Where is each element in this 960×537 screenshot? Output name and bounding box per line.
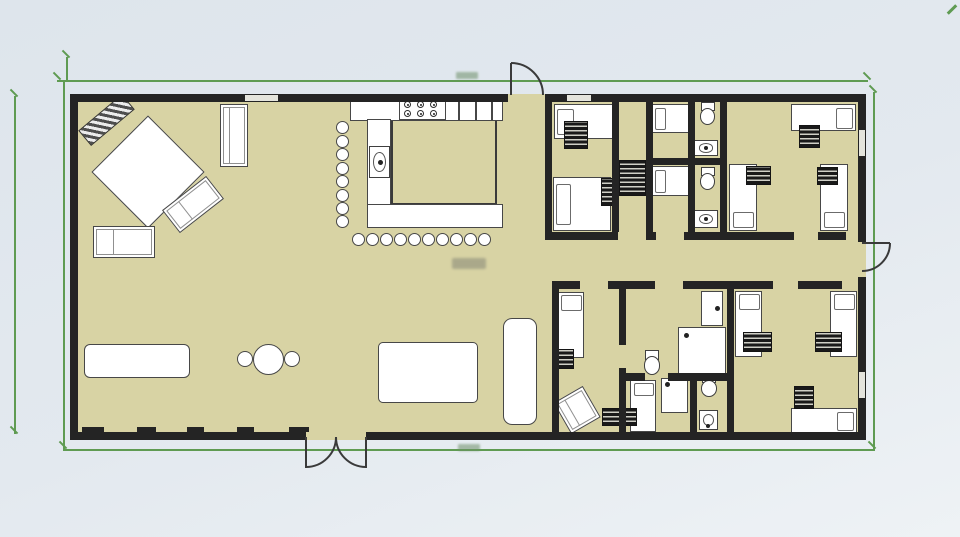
bar-stool [380,233,393,246]
pillow [556,184,571,224]
chair [284,351,300,367]
stove-burner [430,101,437,108]
faucet-dot [704,217,708,221]
bar-stool [336,135,349,148]
exterior-wall-right [858,94,866,242]
bar-stool [464,233,477,246]
bar-stool [336,175,349,188]
bar-stool [450,233,463,246]
bar-stool [422,233,435,246]
dimension-line-left [63,80,65,451]
side-door-arc [862,243,890,271]
toilet-bowl [644,356,660,374]
corridor-wall [818,232,846,240]
round-table [253,344,284,375]
bar-stool [436,233,449,246]
toilet [699,167,714,188]
stove-burner [430,110,437,117]
window [859,130,865,156]
corridor-wall [684,232,794,240]
drain-dot [665,382,670,387]
stove-burner [417,101,424,108]
partition-wall [619,373,645,381]
kitchen-counter-front [367,204,503,228]
corridor-wall [683,281,773,289]
toilet-bowl [700,173,715,190]
patio-door-arc-left [306,437,336,467]
dining-table [378,342,478,403]
pillow [634,383,654,396]
bar-stool [336,202,349,215]
wardrobe [817,167,838,185]
toilet [643,350,659,373]
entry-gap [508,94,546,102]
window-mullion [289,427,309,432]
sofa [93,226,155,258]
bed [652,104,690,133]
bar-stool [336,121,349,134]
dimension-line-right [873,92,875,451]
floor-plan-canvas [0,0,960,537]
stove-burner [417,110,424,117]
partition-wall [612,102,619,232]
partition-wall [646,102,653,232]
exterior-wall-bottom [70,432,306,440]
side-door-gap [858,242,866,277]
exterior-wall-left [70,94,78,440]
chair [237,351,253,367]
wardrobe [743,332,772,352]
bar-stool [336,148,349,161]
exterior-wall-bottom [366,432,866,440]
closet [619,160,646,196]
pillow [733,212,754,228]
dimension-line-left-outer [14,96,16,434]
toilet-bowl [701,380,717,397]
toilet [699,102,714,123]
wardrobe [815,332,842,352]
partition-wall [545,94,552,240]
bar-stool [408,233,421,246]
dimension-line-top [57,80,868,82]
pillow [836,108,853,129]
pillow [824,212,845,228]
drain-dot [684,333,689,338]
faucet-dot [706,424,710,428]
cabinet-divider [475,99,477,120]
window [859,372,865,398]
wardrobe [799,125,820,148]
pillow [739,294,760,310]
partition-wall [552,281,559,440]
entry-door-arc [511,63,543,95]
window-mullion [137,427,156,432]
faucet-dot [378,160,383,165]
pillow [834,294,855,310]
pillow [561,295,582,311]
wardrobe [794,386,814,409]
sofa [220,104,248,167]
dim-label-bottom [458,444,480,451]
bar-stool [336,215,349,228]
bar-stool [478,233,491,246]
window-mullion [237,427,254,432]
stove-burner [404,110,411,117]
patio-door-arc-right [336,437,366,467]
exterior-wall-top [70,94,508,102]
bar-stool [336,189,349,202]
cabinet-divider [458,99,460,120]
bed [791,408,857,433]
toilet-bowl [700,108,715,125]
corridor-wall [552,232,618,240]
kitchen-island-core [391,119,497,205]
dimension-tick [53,72,61,80]
window [245,95,278,101]
corridor-wall [608,281,655,289]
dimension-tick [863,72,871,80]
dim-label-top [456,72,478,79]
partition-wall [720,102,727,232]
partition-wall [727,289,734,432]
pillow [655,108,666,130]
cabinet [503,318,537,425]
partition-wall [619,289,626,345]
drain-dot [715,306,720,311]
corridor-wall [798,281,842,289]
dimension-stub [66,57,68,81]
corridor-wall [559,281,580,289]
sideboard [84,344,190,378]
wardrobe [746,166,771,185]
exterior-wall-right [858,277,866,440]
bar-stool [336,162,349,175]
patio-door-gap [306,432,366,440]
wardrobe [564,121,588,149]
stove-burner [404,101,411,108]
partition-wall [688,102,695,232]
faucet-dot [704,146,708,150]
window [567,95,591,101]
corridor-wall [646,232,656,240]
partition-wall [690,381,697,432]
room-label-smudge [452,258,486,269]
window-mullion [82,427,104,432]
corner-mark [947,4,958,15]
bar-stool [366,233,379,246]
cabinet-divider [491,99,493,120]
window-mullion [187,427,204,432]
exterior-wall-top [546,94,866,102]
pillow [655,170,666,193]
bar-stool [352,233,365,246]
bed [652,166,690,196]
partition-wall [646,158,727,165]
bar-stool [394,233,407,246]
pillow [837,412,854,431]
partition-wall [668,373,727,381]
